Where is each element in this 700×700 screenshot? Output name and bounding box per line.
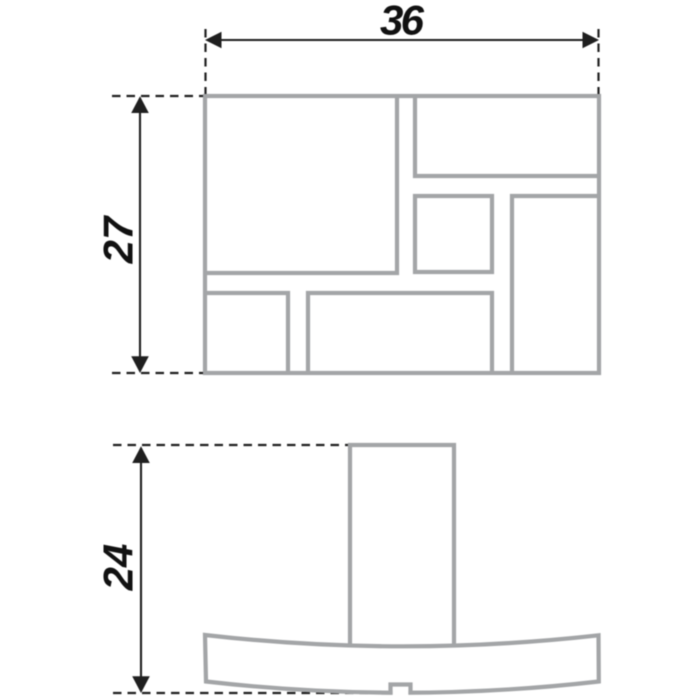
svg-text:24: 24 <box>95 544 142 592</box>
svg-text:27: 27 <box>94 215 141 264</box>
svg-text:36: 36 <box>380 0 425 44</box>
